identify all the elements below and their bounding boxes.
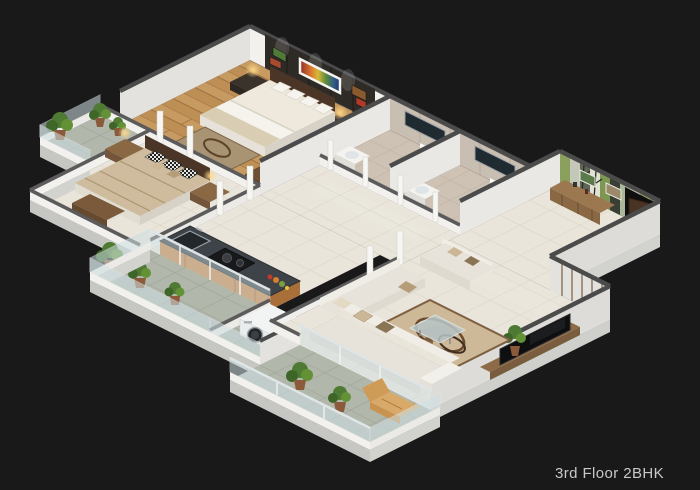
door-frame-pillar [217,181,223,215]
vegetables [273,277,279,283]
door-frame-pillar [398,175,403,205]
door-frame-pillar [363,157,368,187]
floor-caption: 3rd Floor 2BHK [555,465,664,482]
door-frame-pillar [433,192,438,222]
door-frame-pillar [157,111,163,145]
bedside-lamp [203,169,217,183]
floor-plan-render [0,0,700,490]
door-frame-pillar [247,166,253,200]
render-canvas: 3rd Floor 2BHK [0,0,700,490]
bedside-lamp [245,62,261,78]
door-frame-pillar [328,140,333,170]
bedside-lamp [118,126,132,140]
door-frame-pillar [187,126,193,160]
